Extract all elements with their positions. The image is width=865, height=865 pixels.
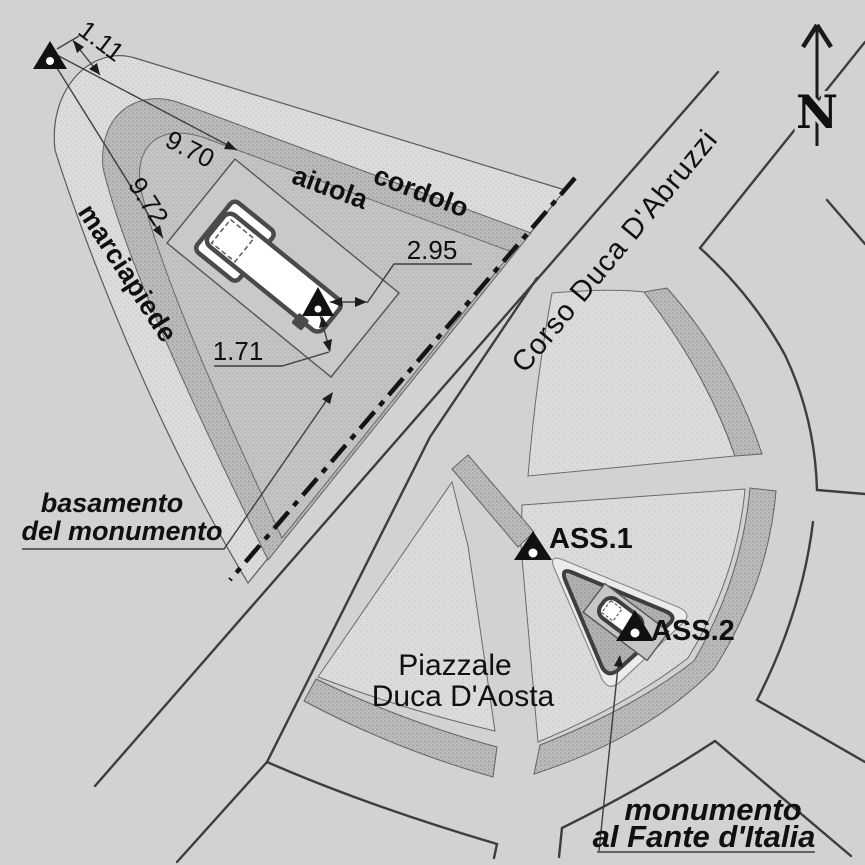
label-basamento-line1: basamento: [41, 488, 184, 518]
site-plan-map: N 1.11 9.70 9.72 2.95 1.71 aiuola cordol…: [0, 0, 865, 865]
north-label: N: [796, 85, 838, 139]
label-piazzale-line1: Piazzale: [398, 649, 511, 682]
marker-dot: [529, 549, 538, 558]
label-piazzale-line2: Duca D'Aosta: [372, 680, 555, 713]
label-monumento-line2: al Fante d'Italia: [593, 819, 816, 854]
marker-dot: [631, 629, 640, 638]
dimension-label-295: 2.95: [407, 235, 458, 265]
dimension-label-171: 1.71: [213, 336, 264, 366]
station-label-ass1: ASS.1: [549, 523, 633, 555]
label-basamento-line2: del monumento: [22, 516, 223, 546]
station-label-ass2: ASS.2: [651, 615, 735, 647]
marker-dot: [315, 306, 322, 313]
site-plan-page: N 1.11 9.70 9.72 2.95 1.71 aiuola cordol…: [0, 0, 865, 865]
marker-dot: [46, 57, 54, 65]
